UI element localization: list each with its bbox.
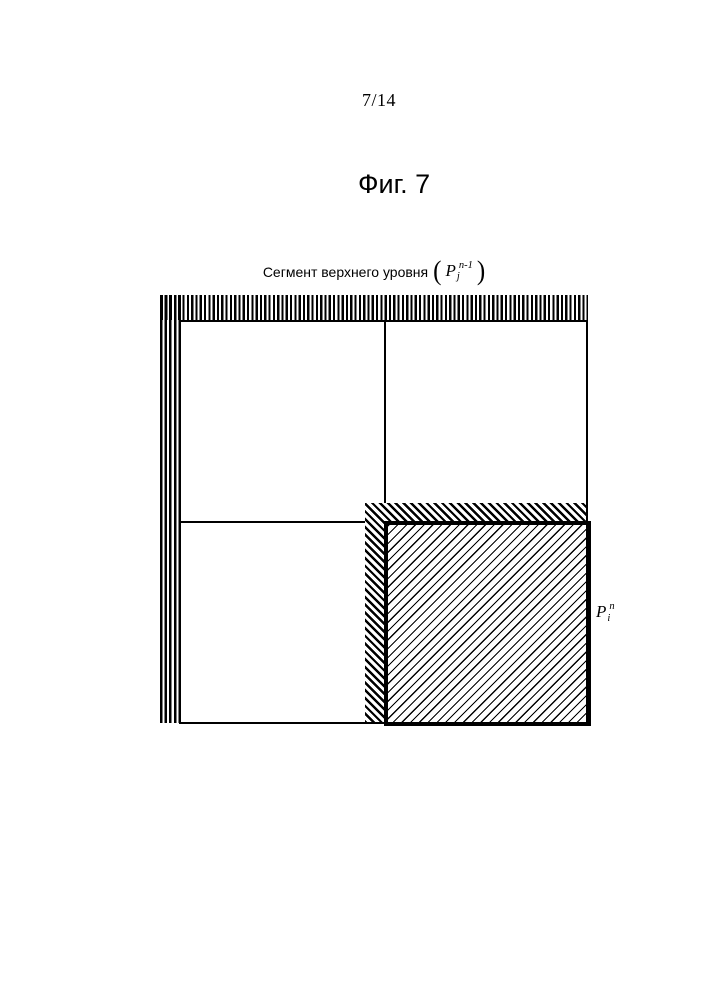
vertical-divider <box>384 321 386 503</box>
formula-symbol: P <box>596 602 606 622</box>
top-level-segment-formula: ( P n-1 j ) <box>433 259 485 284</box>
formula-superscript: n <box>607 602 614 613</box>
patent-figure-page: 7/14 Фиг. 7 Сегмент верхнего уровня ( P … <box>0 0 707 1000</box>
left-stripe-band <box>160 295 181 723</box>
top-level-segment-label: Сегмент верхнего уровня ( P n-1 j ) <box>160 259 588 284</box>
formula-scripts: n i <box>607 602 614 624</box>
formula-scripts: n-1 j <box>457 261 473 283</box>
current-segment-label: P n i <box>596 602 619 624</box>
top-stripe-band <box>161 295 588 320</box>
horizontal-divider <box>181 521 365 523</box>
formula-subscript: j <box>457 272 460 283</box>
page-number: 7/14 <box>362 90 396 111</box>
top-level-segment-label-text: Сегмент верхнего уровня <box>263 264 428 280</box>
figure-title: Фиг. 7 <box>358 169 430 200</box>
formula-superscript: n-1 <box>457 261 473 272</box>
formula-symbol: P <box>445 261 455 281</box>
current-segment-square <box>384 521 591 726</box>
paren-close: ) <box>477 258 485 285</box>
paren-open: ( <box>433 258 441 285</box>
formula-subscript: i <box>607 614 610 625</box>
